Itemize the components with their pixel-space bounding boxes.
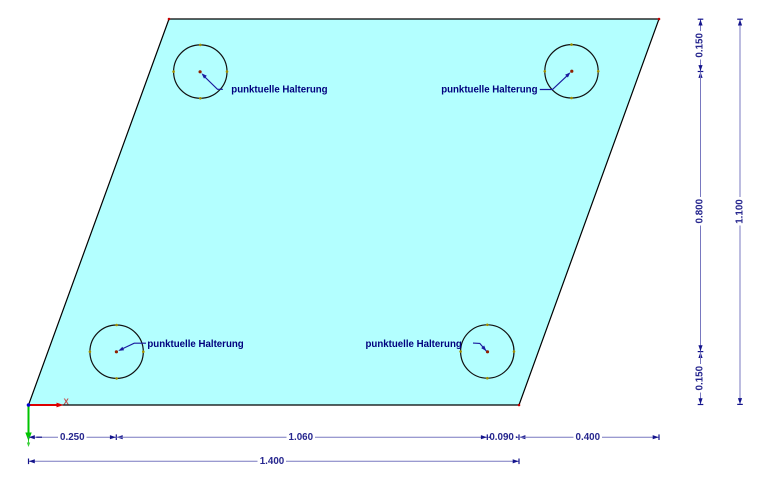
svg-text:1.060: 1.060 (289, 432, 314, 443)
svg-text:X: X (64, 398, 70, 407)
svg-text:0.090: 0.090 (489, 432, 514, 443)
svg-text:0.400: 0.400 (576, 432, 601, 443)
svg-text:1.400: 1.400 (260, 456, 285, 467)
svg-text:0.150: 0.150 (695, 365, 706, 390)
svg-text:punktuelle Halterung: punktuelle Halterung (147, 339, 243, 350)
svg-text:punktuelle Halterung: punktuelle Halterung (441, 84, 537, 95)
svg-text:0.800: 0.800 (695, 198, 706, 223)
svg-text:0.250: 0.250 (60, 432, 85, 443)
svg-text:0.150: 0.150 (695, 32, 706, 57)
svg-text:punktuelle Halterung: punktuelle Halterung (366, 339, 462, 350)
svg-text:1.100: 1.100 (735, 199, 746, 224)
svg-text:punktuelle Halterung: punktuelle Halterung (231, 85, 327, 96)
